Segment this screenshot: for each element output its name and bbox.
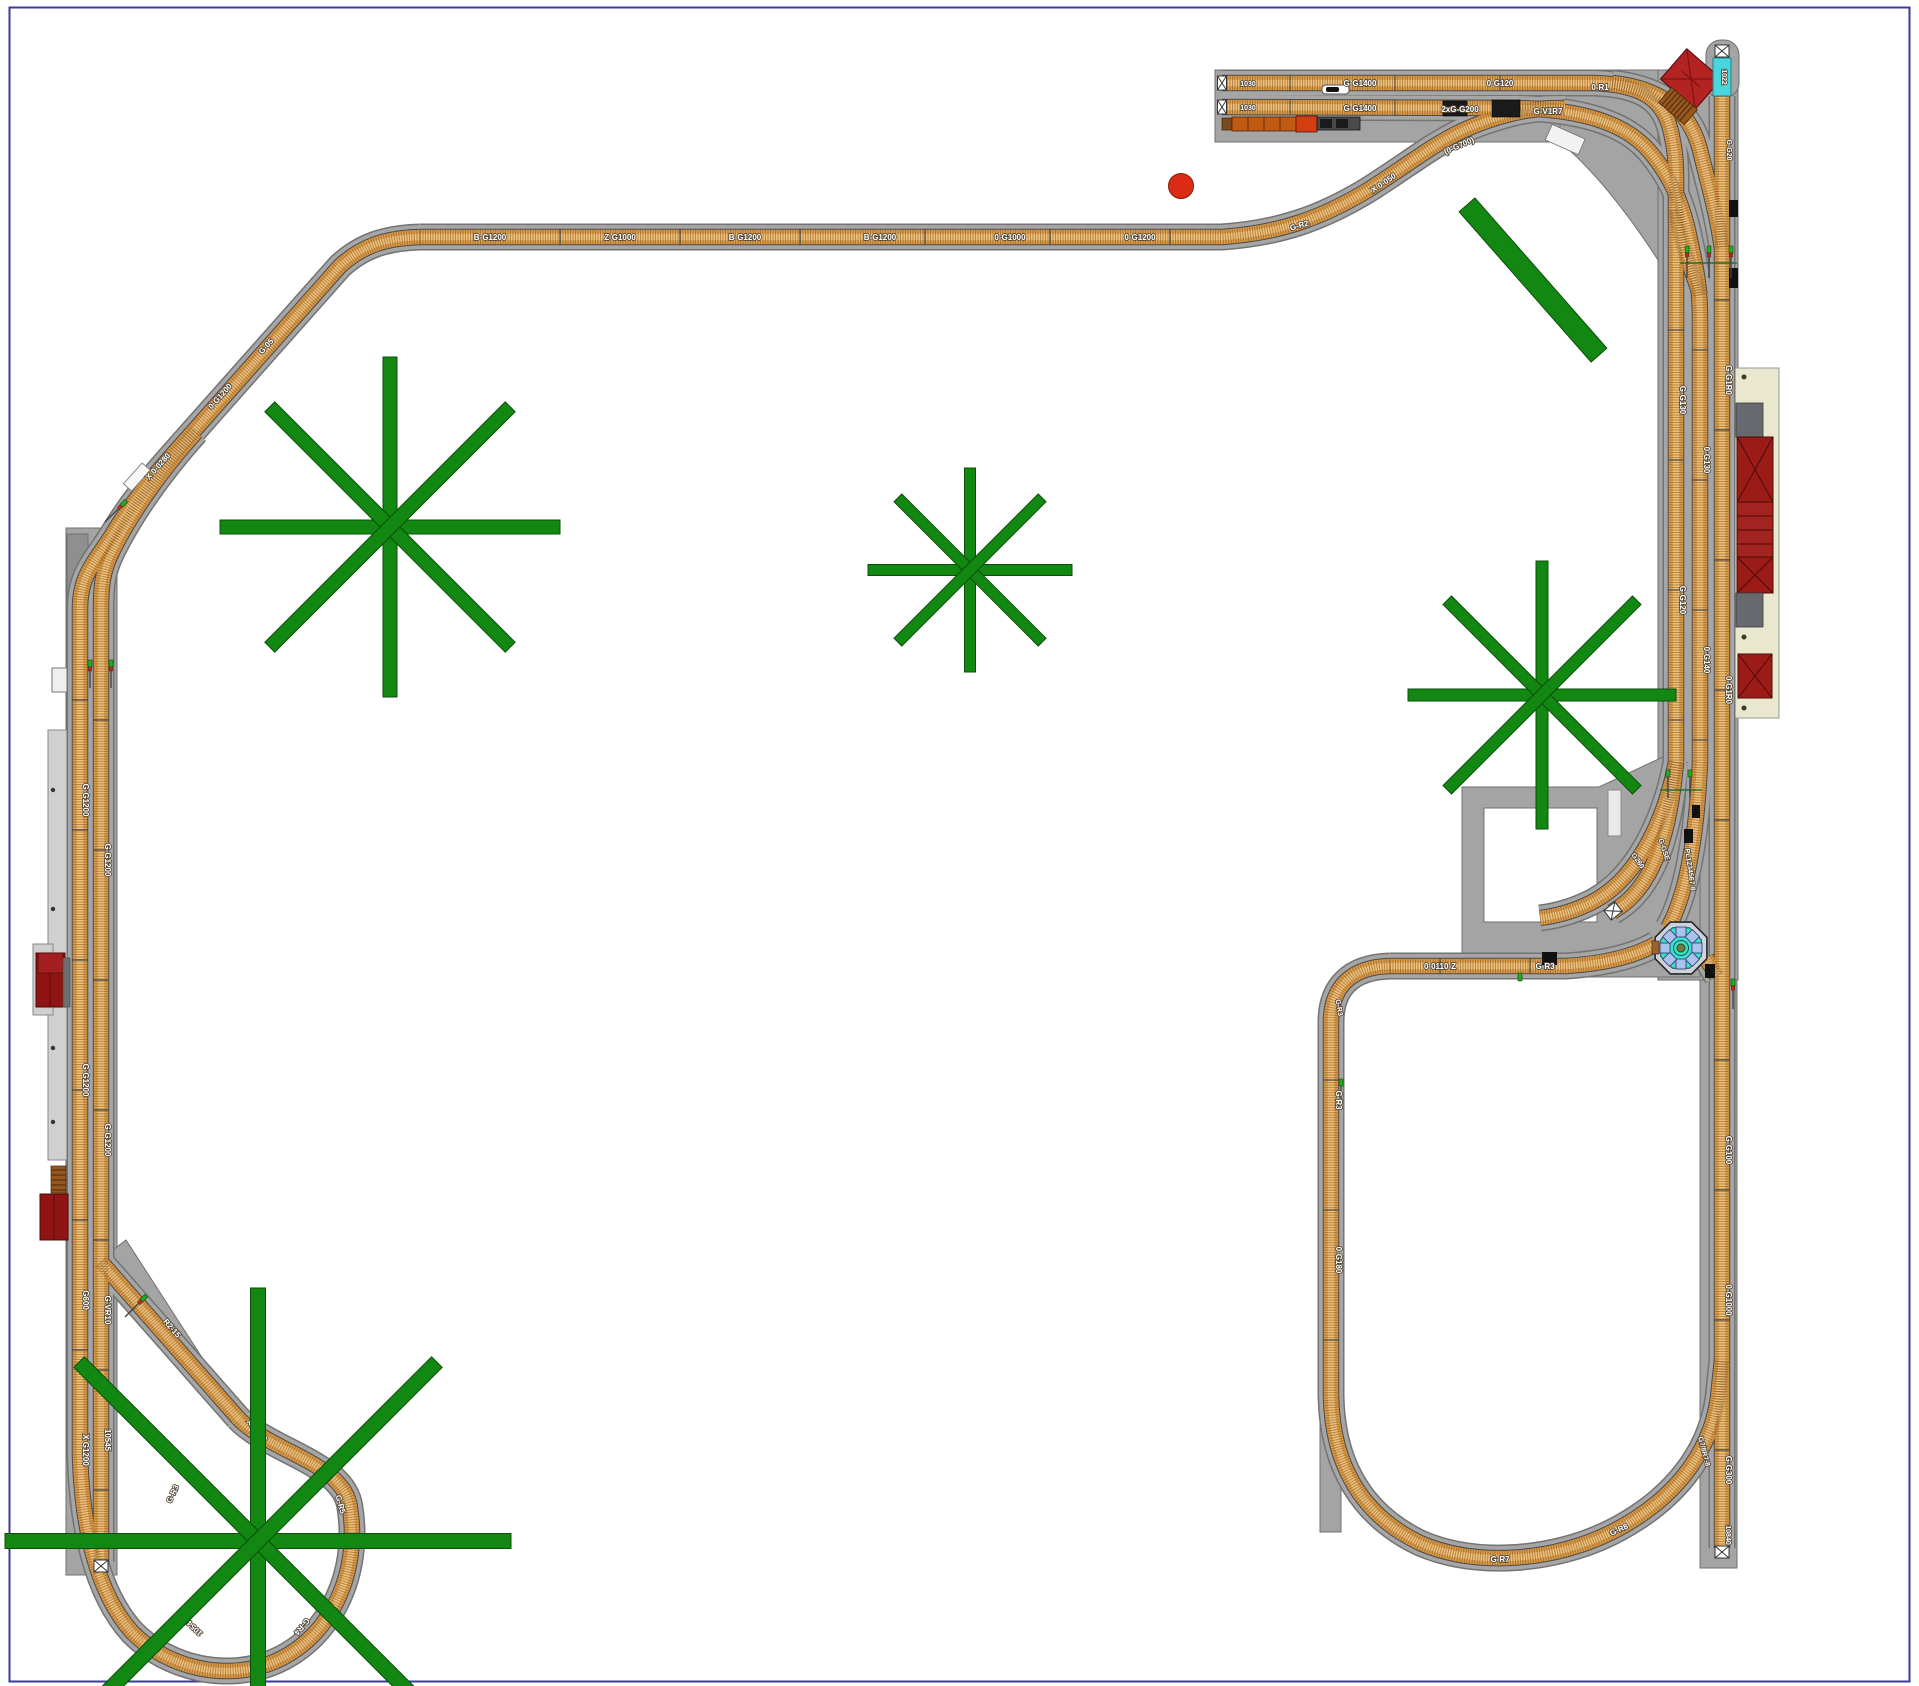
svg-text:0-G130: 0-G130 (1702, 447, 1711, 474)
svg-text:G-G1400: G-G1400 (1344, 104, 1377, 113)
svg-text:0-G1R0: 0-G1R0 (1724, 676, 1733, 705)
svg-text:0-G120: 0-G120 (1487, 79, 1514, 88)
svg-text:0-G180: 0-G180 (1334, 1247, 1343, 1274)
svg-text:G-G1200: G-G1200 (81, 1064, 90, 1097)
svg-text:G-G100: G-G100 (1724, 1136, 1733, 1165)
svg-text:G-R7: G-R7 (1490, 1555, 1510, 1564)
svg-text:0-G1200: 0-G1200 (1124, 233, 1156, 242)
svg-text:G-G120: G-G120 (1678, 586, 1687, 615)
svg-text:B-G1200: B-G1200 (474, 233, 507, 242)
svg-text:G-VR10: G-VR10 (103, 1296, 112, 1325)
svg-text:B-G1200: B-G1200 (729, 233, 762, 242)
svg-text:10840: 10840 (1724, 1525, 1731, 1545)
svg-text:G-G1200: G-G1200 (103, 1124, 112, 1157)
svg-text:1030: 1030 (1240, 81, 1256, 88)
svg-text:G-G1200: G-G1200 (81, 784, 90, 817)
svg-text:G-R3: G-R3 (1334, 1090, 1343, 1110)
svg-text:G-G300: G-G300 (1724, 1456, 1733, 1485)
svg-text:10545: 10545 (103, 1429, 112, 1452)
svg-text:G600: G600 (81, 1290, 90, 1310)
svg-text:G-G1400: G-G1400 (1344, 79, 1377, 88)
svg-text:X G1200: X G1200 (81, 1434, 90, 1466)
svg-text:0-0110-Z: 0-0110-Z (1424, 962, 1456, 971)
svg-text:1022: 1022 (1720, 69, 1727, 85)
svg-text:Z-G1000: Z-G1000 (604, 233, 636, 242)
svg-text:0-G1000: 0-G1000 (994, 233, 1026, 242)
svg-text:0-G1000: 0-G1000 (1724, 1284, 1733, 1316)
svg-text:G-G20: G-G20 (1725, 139, 1732, 160)
svg-text:2xG-G200: 2xG-G200 (1441, 105, 1479, 114)
svg-text:0-R1: 0-R1 (1591, 83, 1609, 92)
svg-text:G-G1R0: G-G1R0 (1724, 365, 1733, 395)
svg-text:1030: 1030 (1240, 105, 1256, 112)
svg-text:G-R3: G-R3 (1535, 962, 1555, 971)
svg-text:G-G1200: G-G1200 (103, 844, 112, 877)
svg-text:B-G1200: B-G1200 (864, 233, 897, 242)
svg-text:0-G140: 0-G140 (1702, 647, 1711, 674)
svg-text:G-G130: G-G130 (1678, 386, 1687, 415)
svg-text:G-V1R7: G-V1R7 (1534, 107, 1563, 116)
